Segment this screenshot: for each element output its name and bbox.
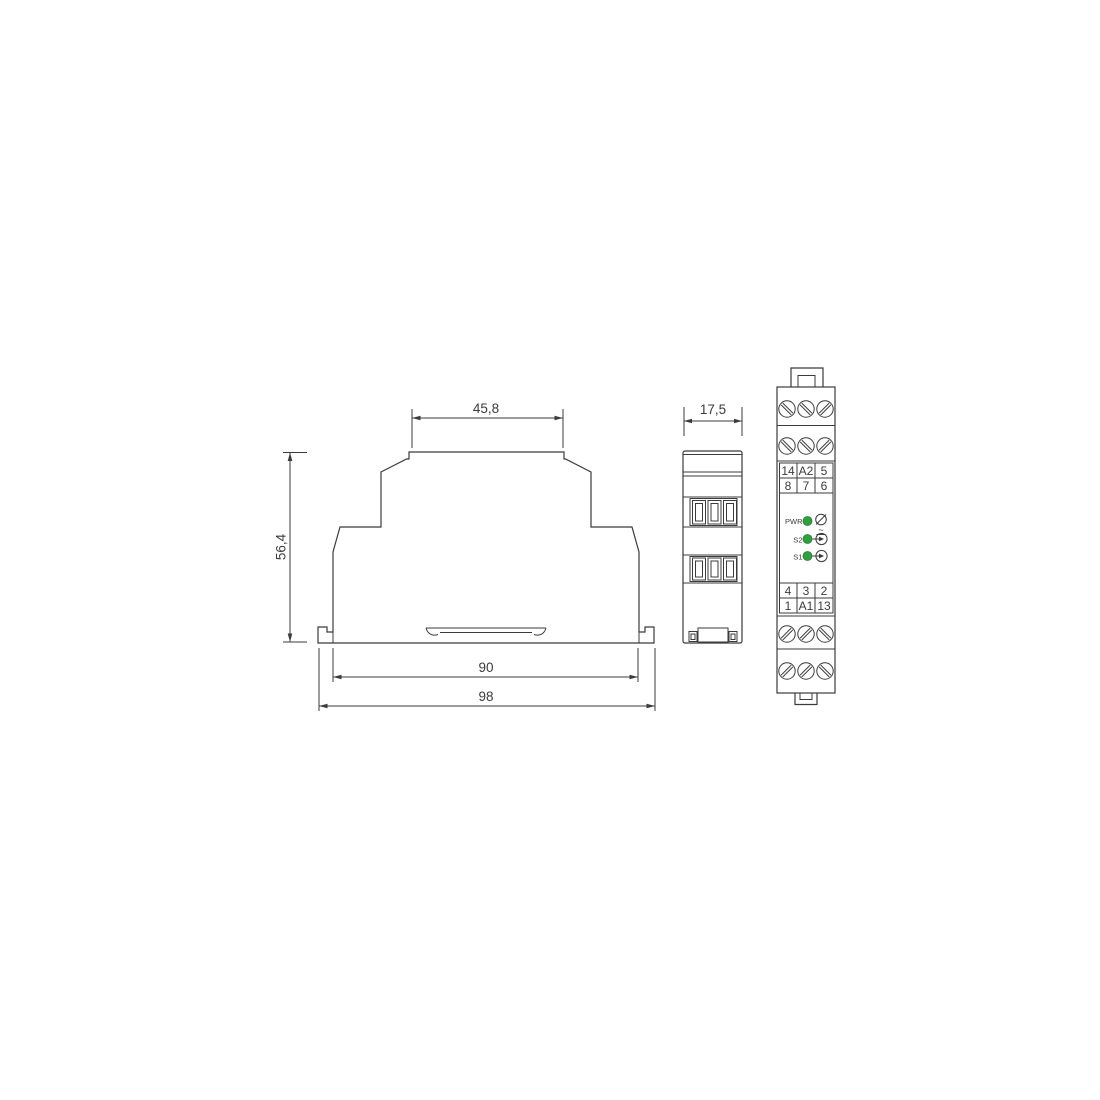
mounting-tab-bottom [795, 693, 817, 705]
diagram-canvas: 45,8 56,4 90 98 [0, 0, 1100, 1100]
dimension-height-label: 56,4 [274, 533, 289, 560]
dimension-depth: 17,5 [684, 402, 742, 436]
screw-terminal-icon [798, 663, 814, 679]
pwr-led-indicator [803, 517, 812, 526]
technical-drawing: 45,8 56,4 90 98 [0, 0, 1100, 1100]
mounting-tab-top [791, 368, 823, 387]
side-view-foot-lines [333, 632, 639, 643]
dimension-body-width: 90 [333, 648, 638, 682]
pwr-led-label: PWR [785, 517, 803, 526]
screw-terminal-icon [817, 663, 833, 679]
terminal-table-bottom: 4 3 2 1 A1 13 [780, 583, 834, 613]
dimension-height: 56,4 [274, 453, 308, 643]
screw-terminal-icon [817, 438, 833, 454]
terminal-label: A1 [799, 599, 814, 613]
terminal-label: 6 [821, 479, 828, 493]
screw-terminal-icon [798, 626, 814, 642]
dimension-body-width-label: 90 [478, 660, 493, 675]
screw-terminal-icon [798, 438, 814, 454]
s1-led-label: S1 [793, 553, 802, 562]
s2-led-label: S2 [793, 536, 802, 545]
screw-terminal-icon [817, 626, 833, 642]
terminal-block-lower [690, 557, 737, 582]
screw-terminal-icon [779, 663, 795, 679]
screw-terminal-icon [779, 401, 795, 417]
led-area: PWR ~ S2 S1 [785, 514, 827, 561]
terminal-label: A2 [799, 464, 814, 478]
terminal-label: 13 [817, 599, 831, 613]
dimension-cap-width: 45,8 [412, 401, 563, 448]
dimension-overall-width: 98 [319, 648, 655, 711]
din-rail-slot [426, 628, 546, 635]
input-symbol-icon [813, 550, 828, 561]
terminal-label: 14 [781, 464, 795, 478]
screw-terminal-icon [779, 438, 795, 454]
screw-row-bottom-2 [779, 663, 833, 679]
screw-terminal-icon [798, 401, 814, 417]
screw-row-top-2 [779, 438, 833, 454]
terminal-table-top: 14 A2 5 8 7 6 [780, 463, 834, 493]
ac-supply-symbol-icon: ~ [816, 514, 827, 536]
terminal-label: 7 [803, 479, 810, 493]
s2-led-indicator [803, 535, 812, 544]
front-view: 14 A2 5 8 7 6 PWR ~ S2 S1 [777, 368, 835, 705]
screw-row-top-1 [779, 401, 833, 417]
din-clip-foot [689, 628, 737, 642]
terminal-label: 3 [803, 584, 810, 598]
terminal-label: 4 [785, 584, 792, 598]
edge-view-body [683, 451, 742, 643]
terminal-label: 2 [821, 584, 828, 598]
terminal-label: 8 [785, 479, 792, 493]
dimension-depth-label: 17,5 [700, 402, 726, 417]
screw-terminal-icon [779, 626, 795, 642]
dimension-cap-width-label: 45,8 [473, 401, 499, 416]
side-view [318, 452, 654, 643]
dimension-overall-width-label: 98 [478, 689, 493, 704]
terminal-block-upper [690, 499, 737, 526]
side-view-outline [318, 452, 654, 643]
edge-view [683, 451, 742, 643]
screw-row-bottom-1 [779, 626, 833, 642]
s1-led-indicator [803, 552, 812, 561]
screw-terminal-icon [817, 401, 833, 417]
terminal-label: 5 [821, 464, 828, 478]
terminal-label: 1 [785, 599, 792, 613]
